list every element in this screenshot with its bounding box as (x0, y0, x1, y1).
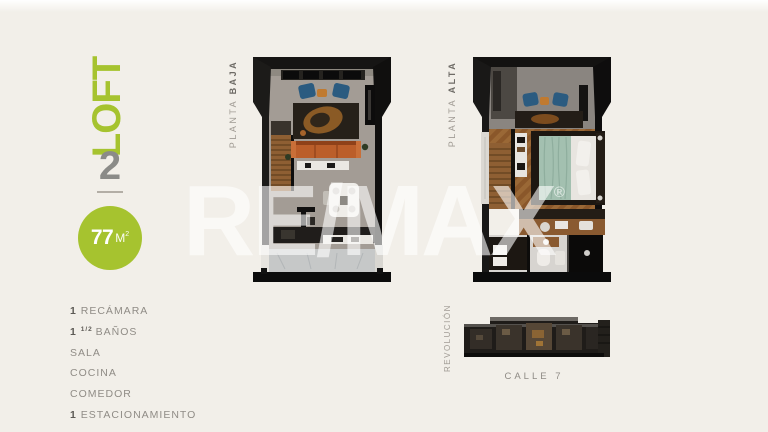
feature-recamara: 1 RECÁMARA (70, 300, 196, 321)
floorplan-planta-alta (467, 57, 617, 286)
pa-bathroom (489, 235, 603, 272)
feature-estacionamiento: 1 ESTACIONAMIENTO (70, 404, 196, 425)
label-planta-baja: PLANTA BAJA (226, 59, 240, 149)
siteplan-building (458, 311, 610, 365)
feature-list: 1 RECÁMARA 1 1/2 BAÑOS SALA COCINA COMED… (70, 300, 196, 425)
unit-divider (97, 191, 123, 193)
feature-cocina: COCINA (70, 362, 196, 383)
pb-patio (253, 245, 391, 282)
pb-console-table (297, 161, 349, 170)
label-planta-alta: PLANTA ALTA (445, 59, 459, 149)
floorplan-planta-baja (247, 57, 397, 286)
pb-kitchen (273, 227, 375, 244)
area-sup: 2 (125, 231, 129, 238)
feature-sala: SALA (70, 342, 196, 363)
area-unit: M2 (115, 231, 129, 245)
pb-rug (293, 102, 359, 139)
pb-sofa (285, 141, 368, 160)
flyer-canvas: LOFT 2 77 M2 1 RECÁMARA 1 1/2 BAÑOS SALA… (0, 0, 768, 432)
label-calle-7: CALLE 7 (458, 371, 610, 382)
area-number: 77 (91, 226, 113, 250)
unit-number: 2 (95, 146, 125, 186)
label-revolucion: REVOLUCIÓN (441, 308, 455, 372)
pa-desk (519, 209, 605, 235)
top-sheen (0, 0, 768, 12)
pa-bottom-wall (473, 272, 611, 282)
feature-comedor: COMEDOR (70, 383, 196, 404)
area-badge: 77 M2 (78, 206, 142, 270)
pa-bed (531, 131, 605, 205)
pb-tv-console (365, 85, 375, 125)
feature-banos: 1 1/2 BAÑOS (70, 321, 196, 342)
